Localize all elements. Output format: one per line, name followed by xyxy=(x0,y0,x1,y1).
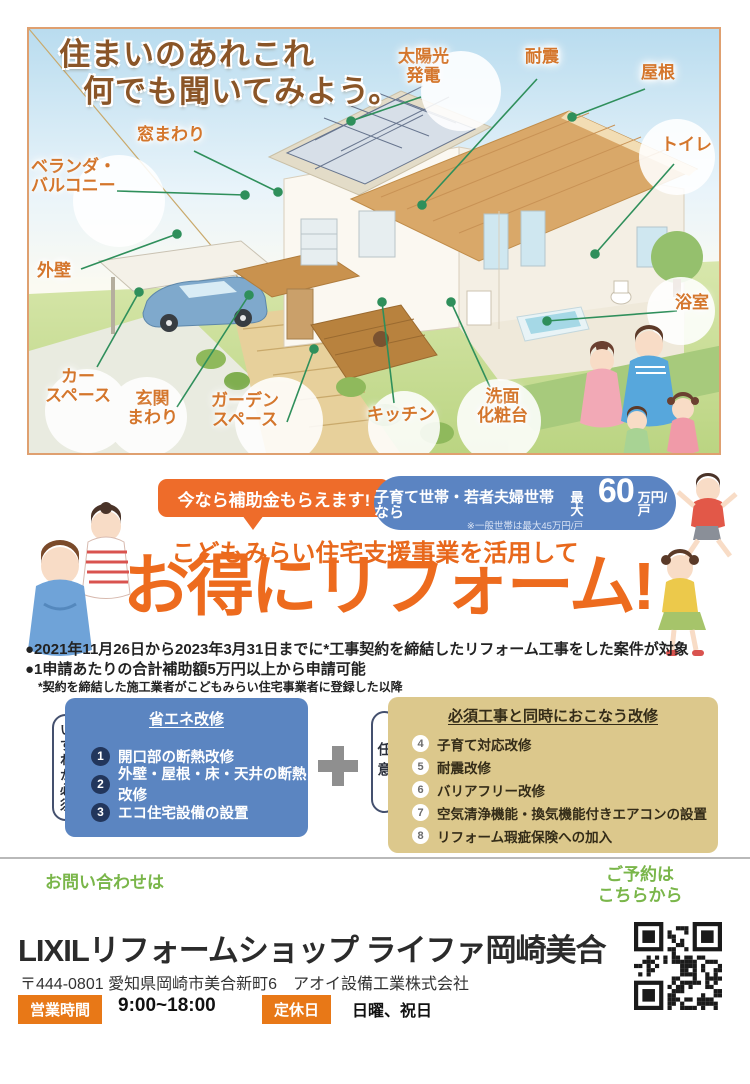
subsidy-bubble-tail xyxy=(242,515,264,530)
plus-icon xyxy=(318,746,358,786)
condition-note: *契約を締結した施工業者がこどもみらい住宅事業者に登録した以降 xyxy=(38,678,403,695)
reservation-label: ご予約は こちらから xyxy=(585,864,695,907)
item-number-badge: 2 xyxy=(91,775,110,794)
item-text: 外壁・屋根・床・天井の断熱改修 xyxy=(118,763,308,805)
optional-works-title: 必須工事と同時におこなう改修 xyxy=(388,705,718,726)
max-subsidy-row: 子育て世帯・若者夫婦世帯なら 最大 60 万円/戸 xyxy=(374,474,676,520)
house-label-kitchen: キッチン xyxy=(367,405,435,424)
house-label-roof: 屋根 xyxy=(641,63,675,82)
flyer-page: 住まいのあれこれ 何でも聞いてみよう。 太陽光 発電 耐震 屋根 トイレ 窓まわ… xyxy=(0,0,750,1084)
item-number-badge: 1 xyxy=(91,747,110,766)
house-label-vanity: 洗面 化粧台 xyxy=(477,387,528,425)
energy-saving-box: 省エネ改修 1 開口部の断熱改修 2 外壁・屋根・床・天井の断熱改修 3 エコ住… xyxy=(65,698,308,837)
house-panel-title: 住まいのあれこれ 何でも聞いてみよう。 xyxy=(59,37,400,110)
item-text: 耐震改修 xyxy=(437,757,491,777)
house-label-window: 窓まわり xyxy=(137,125,205,144)
hours-badge: 営業時間 xyxy=(18,995,102,1024)
subsidy-bubble: 今なら補助金もらえます! xyxy=(158,479,390,517)
house-label-toilet: トイレ xyxy=(661,135,712,154)
optional-works-items: 4 子育て対応改修 5 耐震改修 6 バリアフリー改修 7 空気清浄機能・換気機… xyxy=(388,732,718,847)
item-number-badge: 3 xyxy=(91,803,110,822)
list-item: 8 リフォーム瑕疵保険への加入 xyxy=(412,824,718,847)
house-label-solar: 太陽光 発電 xyxy=(398,47,449,85)
item-text: リフォーム瑕疵保険への加入 xyxy=(437,826,612,846)
closed-badge: 定休日 xyxy=(262,995,331,1024)
energy-saving-title: 省エネ改修 xyxy=(65,708,308,729)
house-title-line2: 何でも聞いてみよう。 xyxy=(83,74,400,111)
item-text: 空気清浄機能・換気機能付きエアコンの設置 xyxy=(437,803,707,823)
house-title-line1: 住まいのあれこれ xyxy=(59,37,400,74)
house-panel: 住まいのあれこれ 何でも聞いてみよう。 太陽光 発電 耐震 屋根 トイレ 窓まわ… xyxy=(27,27,721,455)
item-text: 子育て対応改修 xyxy=(437,734,532,754)
reservation-qr-code xyxy=(634,922,722,1010)
energy-saving-items: 1 開口部の断熱改修 2 外壁・屋根・床・天井の断熱改修 3 エコ住宅設備の設置 xyxy=(65,742,308,826)
house-label-veranda: ベランダ・ バルコニー xyxy=(31,157,116,195)
item-number-badge: 8 xyxy=(412,827,429,844)
list-item: 4 子育て対応改修 xyxy=(412,732,718,755)
list-item: 6 バリアフリー改修 xyxy=(412,778,718,801)
item-number-badge: 6 xyxy=(412,781,429,798)
subsidy-target-text: 子育て世帯・若者夫婦世帯なら xyxy=(374,490,563,520)
hours-value: 9:00~18:00 xyxy=(118,995,216,1017)
condition-bullet-2: ●1申請あたりの合計補助額5万円以上から申請可能 xyxy=(25,658,366,679)
item-number-badge: 7 xyxy=(412,804,429,821)
subsidy-amount: 60 xyxy=(598,474,634,508)
company-name: アオイ設備工業株式会社 xyxy=(293,970,469,994)
item-text: エコ住宅設備の設置 xyxy=(118,802,249,823)
subsidy-note: ※一般世帯は最大45万円/戸 xyxy=(467,522,583,532)
closed-value: 日曜、祝日 xyxy=(352,997,432,1021)
max-subsidy-pill: 子育て世帯・若者夫婦世帯なら 最大 60 万円/戸 ※一般世帯は最大45万円/戸 xyxy=(374,476,676,530)
footer-divider xyxy=(0,857,750,859)
house-label-bath: 浴室 xyxy=(675,293,709,312)
contact-label: お問い合わせは xyxy=(45,868,164,893)
house-label-quake: 耐震 xyxy=(525,47,559,66)
condition-bullet-1: ●2021年11月26日から2023年3月31日までに*工事契約を締結したリフォ… xyxy=(25,638,689,659)
promo-title: お得にリフォーム! xyxy=(60,552,715,622)
house-label-wall: 外壁 xyxy=(37,261,71,280)
shop-address: 〒444-0801 愛知県岡崎市美合新町6 xyxy=(20,970,277,994)
house-label-garden: ガーデン スペース xyxy=(211,391,279,429)
list-item: 7 空気清浄機能・換気機能付きエアコンの設置 xyxy=(412,801,718,824)
item-number-badge: 4 xyxy=(412,735,429,752)
house-label-entrance: 玄関 まわり xyxy=(127,389,178,427)
item-number-badge: 5 xyxy=(412,758,429,775)
list-item: 2 外壁・屋根・床・天井の断熱改修 xyxy=(91,770,308,798)
shop-name: LIXILリフォームショップ ライファ岡崎美合 xyxy=(18,925,605,970)
subsidy-max-label: 最大 xyxy=(571,491,594,517)
optional-works-box: 必須工事と同時におこなう改修 4 子育て対応改修 5 耐震改修 6 バリアフリー… xyxy=(388,697,718,853)
house-label-carspace: カー スペース xyxy=(45,367,111,405)
item-text: バリアフリー改修 xyxy=(437,780,545,800)
list-item: 5 耐震改修 xyxy=(412,755,718,778)
